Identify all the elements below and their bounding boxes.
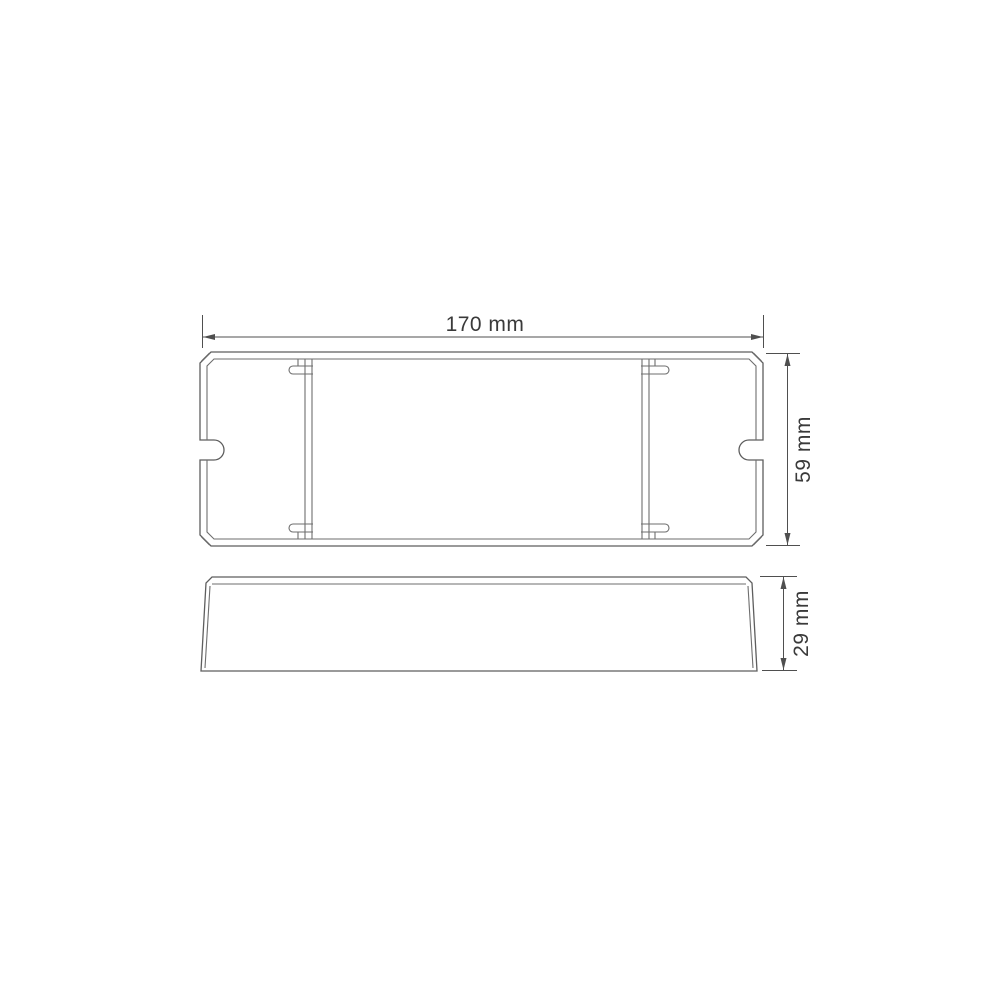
corner-chamfer-lines: [202, 353, 762, 545]
arrowhead-top: [785, 354, 791, 366]
latch-step-bottom: [298, 532, 305, 539]
dimension-height-label: 59 mm: [792, 416, 815, 483]
latch-pin-bottom: [289, 524, 313, 532]
side-view: [201, 577, 757, 671]
terminal-cover-left: [289, 359, 313, 539]
dimension-height: 59 mm: [766, 354, 815, 546]
latch-step-top: [649, 359, 655, 366]
latch-step-top: [298, 359, 305, 366]
latch-pin-bottom: [641, 524, 669, 532]
latch-step-bottom: [649, 532, 655, 539]
terminal-cover-right: [641, 359, 669, 539]
technical-drawing: 170 mm 59 mm 29 mm: [0, 0, 1000, 1000]
side-view-outline: [201, 577, 757, 671]
arrowhead-left: [203, 334, 215, 340]
top-view: [200, 352, 763, 546]
cover-edge-lines: [642, 359, 649, 539]
arrowhead-right: [751, 334, 763, 340]
arrowhead-top: [781, 577, 787, 589]
dimension-width: 170 mm: [203, 313, 764, 348]
dimension-width-label: 170 mm: [446, 313, 525, 336]
arrowhead-bottom: [785, 533, 791, 545]
top-view-outer-outline: [200, 352, 763, 546]
dimension-depth: 29 mm: [760, 577, 813, 671]
top-view-inner-outline: [207, 359, 756, 539]
latch-pin-top: [289, 366, 313, 374]
arrowhead-bottom: [781, 658, 787, 670]
latch-pin-top: [641, 366, 669, 374]
dimension-depth-label: 29 mm: [790, 590, 813, 657]
drawing-canvas: 170 mm 59 mm 29 mm: [0, 0, 1000, 1000]
cover-edge-lines: [305, 359, 312, 539]
